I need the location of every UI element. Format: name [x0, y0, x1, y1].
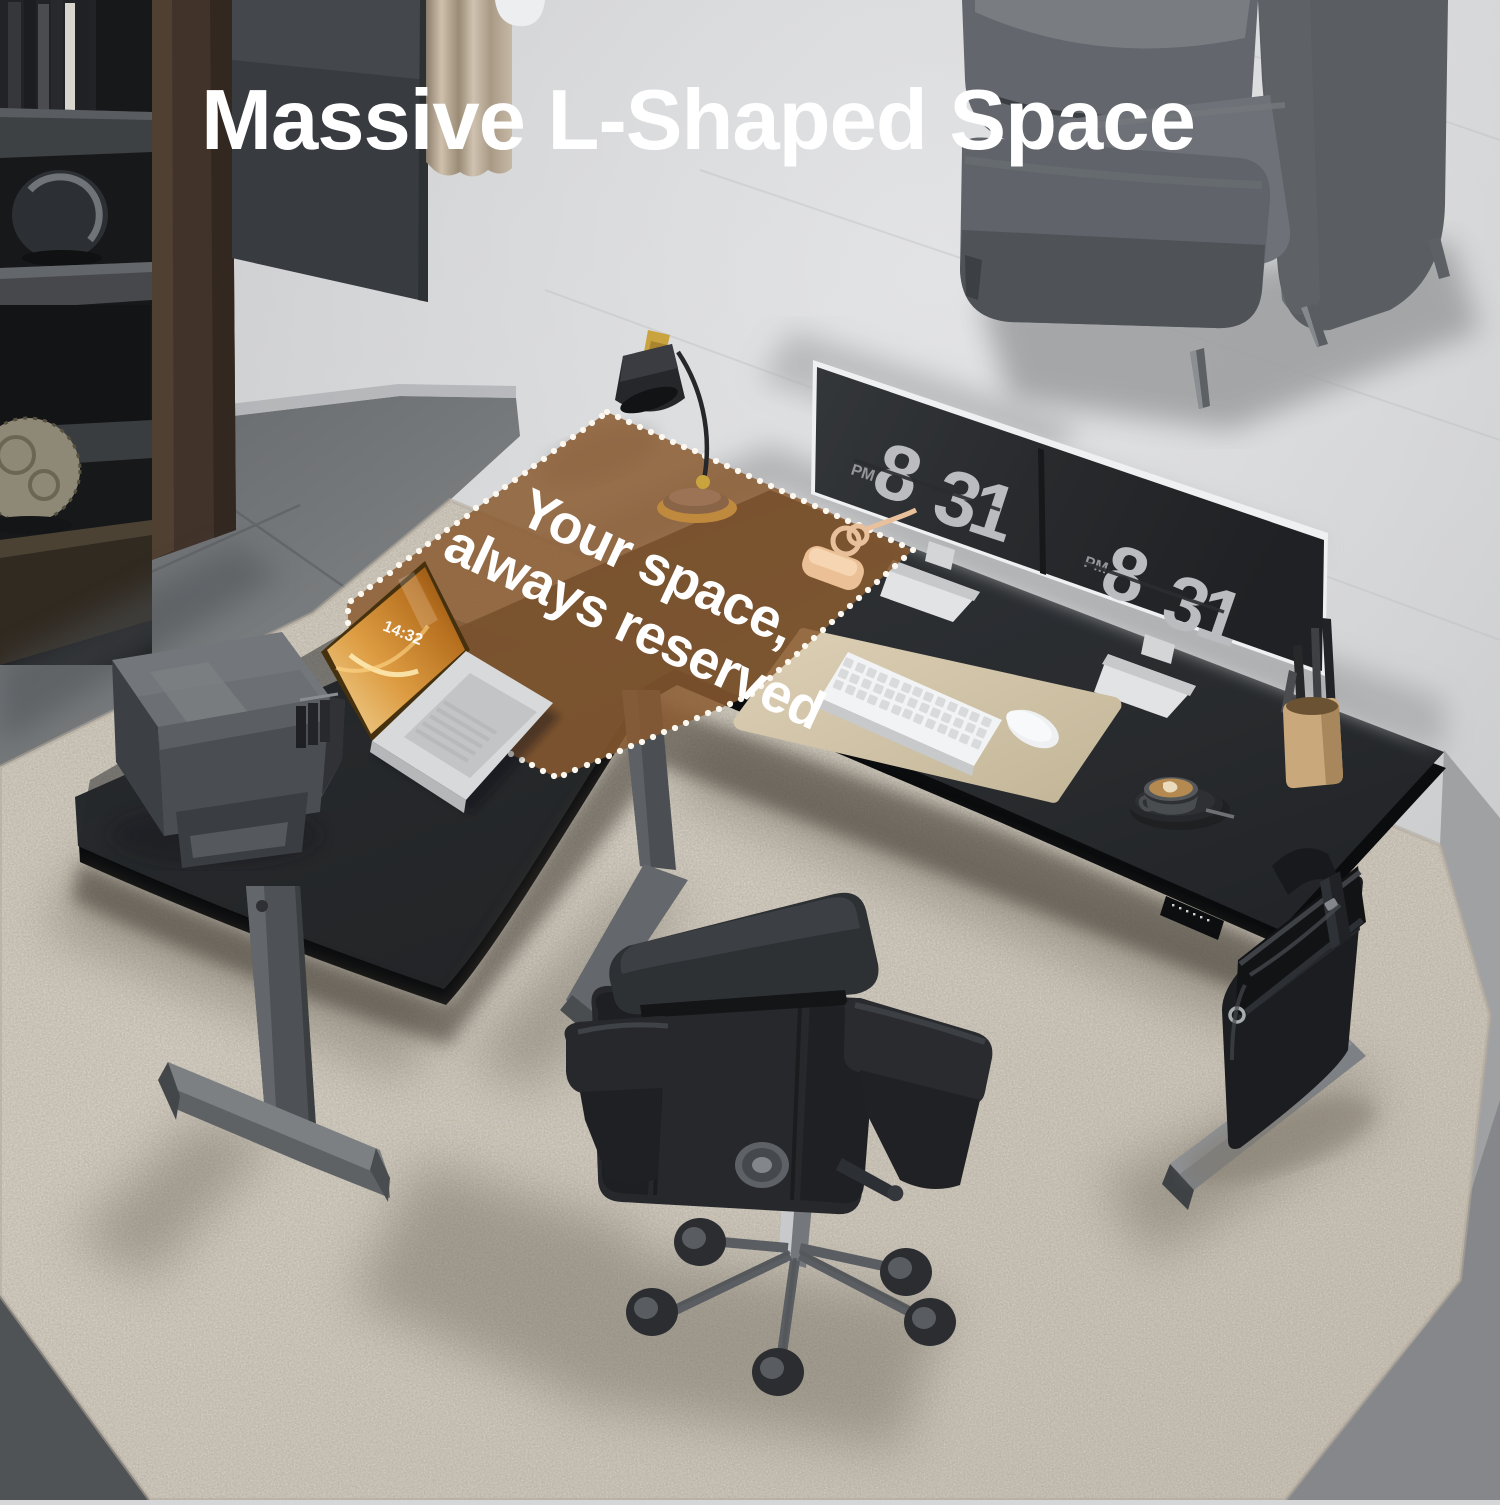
svg-text:Massive L-Shaped Space: Massive L-Shaped Space: [201, 73, 1195, 168]
